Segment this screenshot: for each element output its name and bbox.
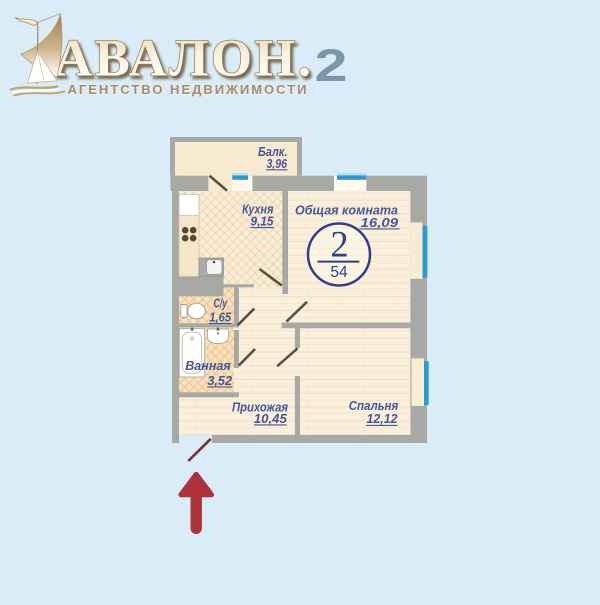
svg-text:Спальня: Спальня	[349, 398, 399, 413]
svg-text:АГЕНТСТВО НЕДВИЖИМОСТИ: АГЕНТСТВО НЕДВИЖИМОСТИ	[68, 82, 309, 97]
svg-text:Ванная: Ванная	[185, 358, 231, 373]
svg-text:3,52: 3,52	[207, 374, 232, 388]
svg-text:9,15: 9,15	[251, 215, 275, 229]
svg-text:16,09: 16,09	[361, 215, 399, 230]
svg-text:10,45: 10,45	[254, 412, 288, 426]
svg-text:54: 54	[330, 264, 348, 281]
svg-text:2: 2	[330, 223, 348, 264]
svg-text:1,65: 1,65	[209, 311, 232, 325]
svg-text:3,96: 3,96	[266, 157, 287, 171]
svg-text:12,12: 12,12	[367, 412, 398, 426]
svg-text:2: 2	[315, 40, 348, 91]
svg-text:С/у: С/у	[214, 297, 228, 311]
svg-text:АВАЛОН.: АВАЛОН.	[54, 30, 313, 88]
